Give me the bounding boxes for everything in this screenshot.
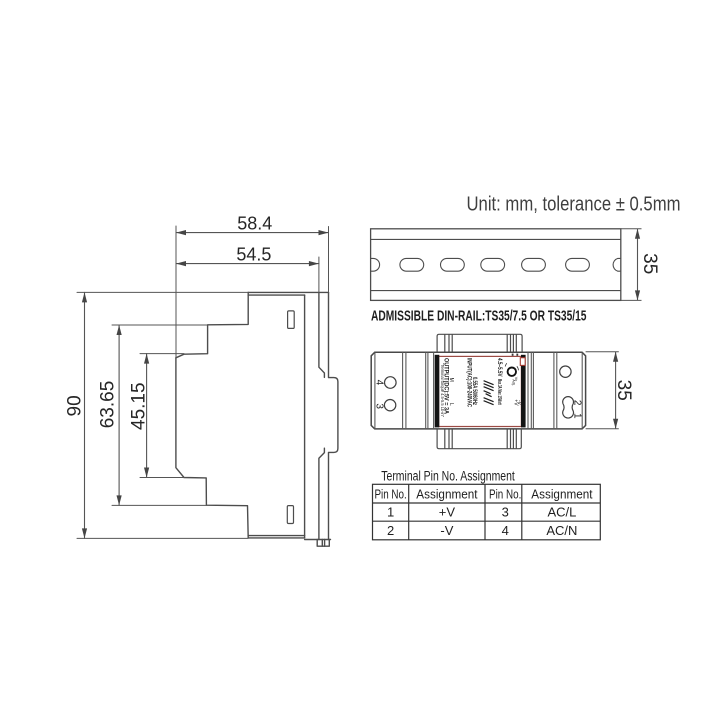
svg-text:35: 35 [613, 380, 634, 401]
svg-text:2: 2 [387, 523, 394, 538]
svg-text:4.5–5.5V: 4.5–5.5V [496, 358, 502, 377]
svg-text:35: 35 [639, 253, 660, 274]
svg-text:54.5: 54.5 [236, 244, 271, 264]
svg-text:45.15: 45.15 [128, 382, 149, 430]
svg-text:Assignment: Assignment [531, 486, 593, 501]
svg-text:90: 90 [65, 395, 86, 416]
svg-text:Max.3A Max 15Watt: Max.3A Max 15Watt [496, 379, 502, 405]
svg-text:M: M [448, 378, 454, 382]
svg-text:4: 4 [374, 380, 385, 386]
svg-text:-V: -V [440, 523, 453, 538]
svg-text:3: 3 [373, 403, 384, 409]
svg-text:Pin No.: Pin No. [489, 486, 521, 501]
svg-text:1: 1 [387, 505, 394, 520]
svg-text:+V: +V [439, 505, 456, 520]
svg-text:Adj.: Adj. [512, 379, 516, 386]
svg-text:L: L [448, 403, 454, 406]
svg-text:1: 1 [571, 413, 582, 419]
svg-text:58.4: 58.4 [237, 213, 272, 233]
svg-text:0.55A 50/60Hz: 0.55A 50/60Hz [471, 377, 478, 405]
svg-text:2: 2 [571, 400, 582, 406]
svg-text:3: 3 [502, 505, 509, 520]
svg-text:4: 4 [502, 523, 509, 538]
svg-text:Unit: mm, tolerance ± 0.5mm: Unit: mm, tolerance ± 0.5mm [467, 194, 681, 216]
svg-text:Assignment: Assignment [416, 486, 478, 501]
svg-text:ADMISSIBLE DIN-RAIL:TS35/7.5 O: ADMISSIBLE DIN-RAIL:TS35/7.5 OR TS35/15 [371, 307, 587, 324]
svg-text:AC/N: AC/N [546, 523, 577, 538]
svg-text:AC/L: AC/L [547, 505, 576, 520]
svg-text:Terminal Pin No. Assignment: Terminal Pin No. Assignment [381, 468, 515, 483]
svg-text:Pin No.: Pin No. [374, 486, 406, 501]
svg-text:-V: -V [516, 400, 522, 406]
svg-text:63.65: 63.65 [98, 381, 119, 429]
